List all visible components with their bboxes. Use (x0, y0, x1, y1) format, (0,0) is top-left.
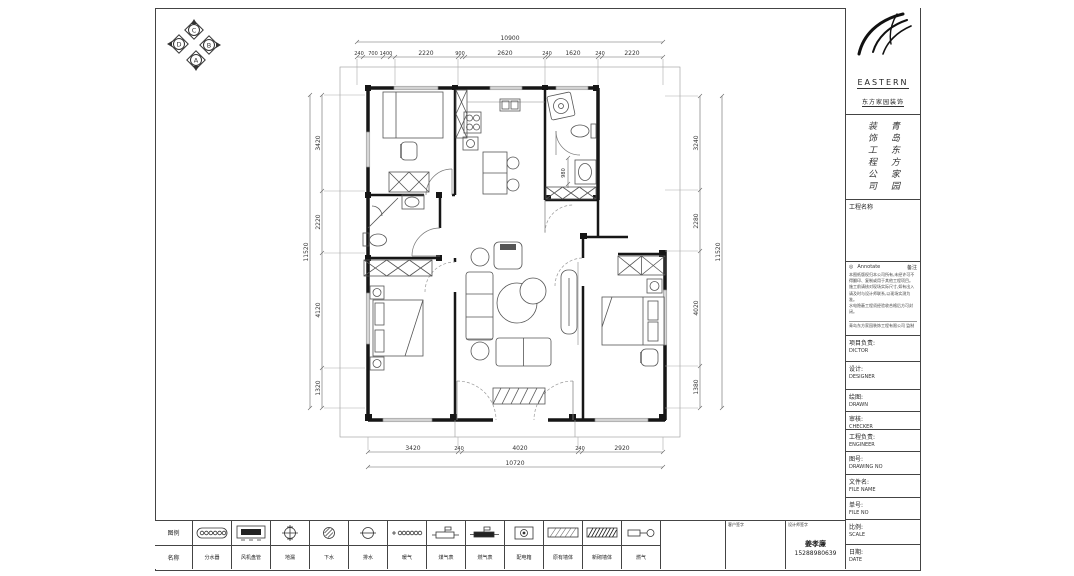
svg-text:240: 240 (575, 446, 585, 452)
legend-item: 燃气 (622, 521, 661, 569)
existing-wall-icon (545, 523, 581, 543)
svg-text:4020: 4020 (693, 300, 700, 315)
legend-header-top: 图例 (155, 521, 192, 546)
drawing-sheet-page: C B A D (0, 0, 1074, 576)
compass-west-label: D (176, 40, 181, 48)
notes-header-en: Annotate (857, 264, 880, 271)
legend-item: 风机盘管 (232, 521, 271, 569)
legend-spacer-cell (661, 521, 726, 569)
notes-section: ◎ Annotate 备注 本图纸版权归本公司所有,未经许可不 得翻印、复制或用… (846, 262, 920, 336)
field-date: 日期: DATE (846, 545, 920, 569)
furniture (363, 90, 665, 437)
svg-text:3420: 3420 (405, 445, 420, 452)
svg-text:1620: 1620 (565, 50, 580, 57)
logo-section: EASTERN 东方家园装饰 (846, 8, 920, 115)
legend-header-cell: 图例 名称 (155, 521, 193, 569)
legend-item: 原有墙体 (544, 521, 583, 569)
field-drawn: 绘图: DRAWN (846, 390, 920, 412)
field-file-no: 单号: FILE NO (846, 498, 920, 520)
compass-north-label: C (192, 26, 197, 34)
master-bedroom (364, 260, 432, 370)
dim-bottom-overall: 10720 (505, 460, 524, 467)
project-name-label: 工程名称 (849, 202, 920, 211)
fan-coil-icon (233, 523, 269, 543)
legend-item: 煤气表 (427, 521, 466, 569)
bedroom1-study (383, 92, 443, 192)
gas-valve-icon (467, 523, 503, 543)
field-director: 项目负责: DICTOR (846, 336, 920, 362)
svg-text:700: 700 (368, 51, 378, 57)
svg-text:240: 240 (354, 51, 364, 57)
client-signature-label: 客户签字 (728, 522, 744, 528)
svg-text:2920: 2920 (614, 445, 629, 452)
svg-text:1320: 1320 (315, 380, 322, 395)
note-line: 请及时与设计师联系,以现场实测为准。 (849, 291, 917, 303)
compass: C B A D (167, 19, 221, 71)
living-room (466, 242, 578, 366)
bathroom-mid (363, 195, 424, 246)
notes-footer: 青岛东方家园装饰工程有限公司 监制 (849, 321, 917, 329)
doors (412, 131, 583, 420)
legend-item: 分水器 (193, 521, 232, 569)
svg-text:3240: 3240 (693, 135, 700, 150)
manifold-icon (194, 523, 230, 543)
gas-meter-icon (428, 523, 464, 543)
drain-hatched-icon (311, 523, 347, 543)
dim-interior: 980 (561, 168, 567, 178)
brand-name-cn: 东方家园装饰 (862, 97, 904, 107)
legend-item: 燃气表 (466, 521, 505, 569)
legend-header-bottom: 名称 (155, 546, 192, 569)
field-checker: 审核: CHECKER (846, 412, 920, 430)
field-file-name: 文件名: FILE NAME (846, 475, 920, 498)
annotate-icon: ◎ (849, 264, 853, 271)
svg-text:240: 240 (595, 51, 605, 57)
svg-text:4120: 4120 (315, 302, 322, 317)
project-name-section: 工程名称 (846, 200, 920, 262)
svg-text:3420: 3420 (315, 135, 322, 150)
field-engineer: 工程负责: ENGINEER (846, 430, 920, 452)
field-designer: 设计: DESIGNER (846, 362, 920, 390)
legend-item: 暖气 (388, 521, 427, 569)
field-drawing-no: 图号: DRAWING NO (846, 452, 920, 475)
bedroom2 (602, 256, 665, 366)
dim-left-overall: 11520 (303, 242, 310, 261)
new-wall-icon (584, 523, 620, 543)
legend-item: 新砌墙体 (583, 521, 622, 569)
legend-strip: 图例 名称 分水器 风机盘管 地漏 下水 排水 暖气 (155, 520, 845, 569)
note-line: 水电隐蔽工程须经验收合格后方可封闭。 (849, 303, 917, 315)
svg-text:240: 240 (454, 446, 464, 452)
company-section: 装饰工程公司 青岛东方家园 (846, 115, 920, 200)
field-scale: 比例: SCALE (846, 520, 920, 545)
client-signature-cell: 客户签字 (726, 521, 786, 569)
distribution-box-icon (506, 523, 542, 543)
svg-text:2220: 2220 (418, 50, 433, 57)
floor-drain-icon (272, 523, 308, 543)
note-line: 施工前请核对现场实际尺寸,如有出入 (849, 284, 917, 290)
designer-signature-label: 设计师签字 (788, 522, 808, 528)
svg-text:900: 900 (455, 51, 465, 57)
dim-right-overall: 11520 (715, 242, 722, 261)
waste-pipe-icon (350, 523, 386, 543)
designer-signature-cell: 设计师签字 姜孝廉 15288980639 (786, 521, 845, 569)
svg-text:2220: 2220 (315, 214, 322, 229)
legend-item: 排水 (349, 521, 388, 569)
title-block: EASTERN 东方家园装饰 装饰工程公司 青岛东方家园 工程名称 ◎ Anno… (845, 8, 920, 569)
legend-item: 地漏 (271, 521, 310, 569)
kitchen (456, 90, 545, 194)
svg-text:240: 240 (542, 51, 552, 57)
svg-text:1380: 1380 (693, 379, 700, 394)
brand-name: EASTERN (857, 78, 908, 89)
gas-fitting-icon (623, 523, 659, 543)
heating-coil-icon (389, 523, 425, 543)
company-col-right: 青岛东方家园 (888, 121, 901, 193)
dim-top-overall: 10900 (500, 35, 519, 42)
svg-text:4020: 4020 (512, 445, 527, 452)
svg-text:2220: 2220 (624, 50, 639, 57)
compass-east-label: B (207, 41, 211, 49)
svg-text:2280: 2280 (693, 213, 700, 228)
eastern-logo-icon (851, 8, 915, 66)
designer-name: 姜孝廉 (786, 539, 845, 549)
designer-phone: 15288980639 (786, 550, 845, 557)
svg-text:1400: 1400 (380, 51, 393, 57)
legend-item: 下水 (310, 521, 349, 569)
notes-header-cn: 备注 (907, 264, 917, 271)
company-col-left: 装饰工程公司 (865, 121, 878, 193)
compass-south-label: A (194, 56, 199, 64)
bathroom-top (546, 92, 596, 199)
svg-text:2620: 2620 (497, 50, 512, 57)
legend-item: 配电箱 (505, 521, 544, 569)
